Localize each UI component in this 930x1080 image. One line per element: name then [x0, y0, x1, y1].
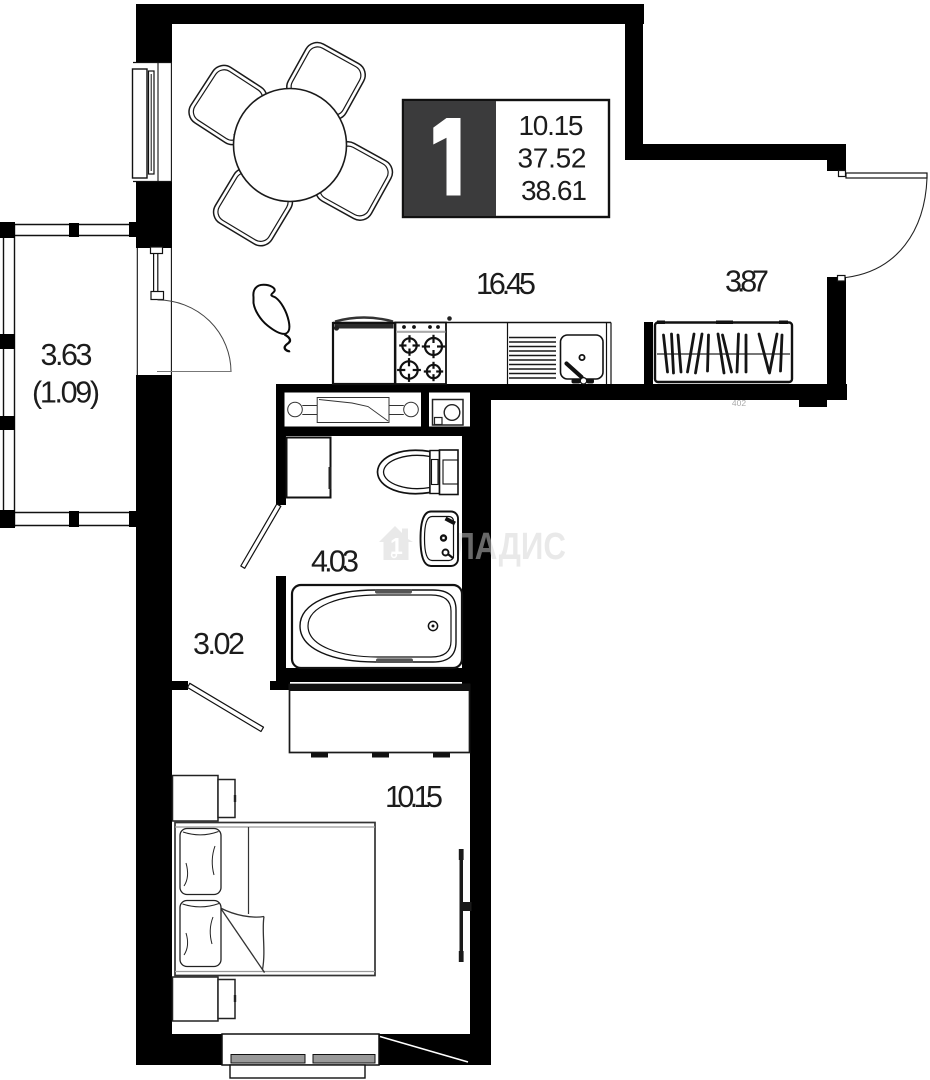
svg-text:10.15: 10.15: [519, 110, 584, 141]
svg-text:10.15: 10.15: [385, 780, 443, 814]
svg-text:(1.09): (1.09): [32, 376, 100, 410]
svg-text:402: 402: [732, 398, 746, 408]
svg-text:3.63: 3.63: [41, 338, 93, 372]
svg-text:37.52: 37.52: [518, 143, 587, 174]
svg-text:16.45: 16.45: [476, 267, 536, 301]
svg-text:3.87: 3.87: [725, 265, 769, 299]
svg-text:3.02: 3.02: [193, 627, 245, 661]
svg-text:4.03: 4.03: [311, 545, 359, 579]
svg-text:38.61: 38.61: [521, 175, 587, 206]
